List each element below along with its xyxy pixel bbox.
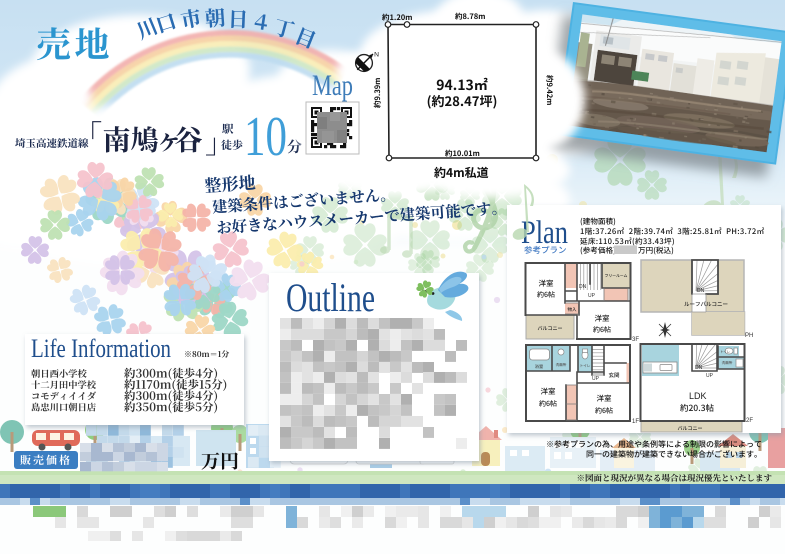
svg-text:Life Information: Life Information bbox=[31, 334, 171, 363]
svg-text:UP: UP bbox=[588, 293, 596, 299]
svg-text:N: N bbox=[374, 51, 379, 58]
svg-text:UP: UP bbox=[592, 376, 600, 382]
svg-text:2F: 2F bbox=[746, 418, 753, 424]
svg-text:1F: 1F bbox=[632, 419, 639, 425]
svg-text:PH: PH bbox=[745, 333, 753, 339]
svg-text:DN: DN bbox=[697, 288, 705, 294]
svg-text:Outline: Outline bbox=[286, 275, 375, 320]
svg-text:UP: UP bbox=[706, 373, 714, 379]
svg-text:LDK: LDK bbox=[689, 391, 707, 401]
svg-text:3F: 3F bbox=[632, 337, 639, 343]
svg-text:DN: DN bbox=[579, 284, 587, 290]
svg-text:10: 10 bbox=[244, 106, 287, 168]
svg-text:DN: DN bbox=[695, 365, 703, 371]
svg-text:Map: Map bbox=[312, 69, 353, 102]
